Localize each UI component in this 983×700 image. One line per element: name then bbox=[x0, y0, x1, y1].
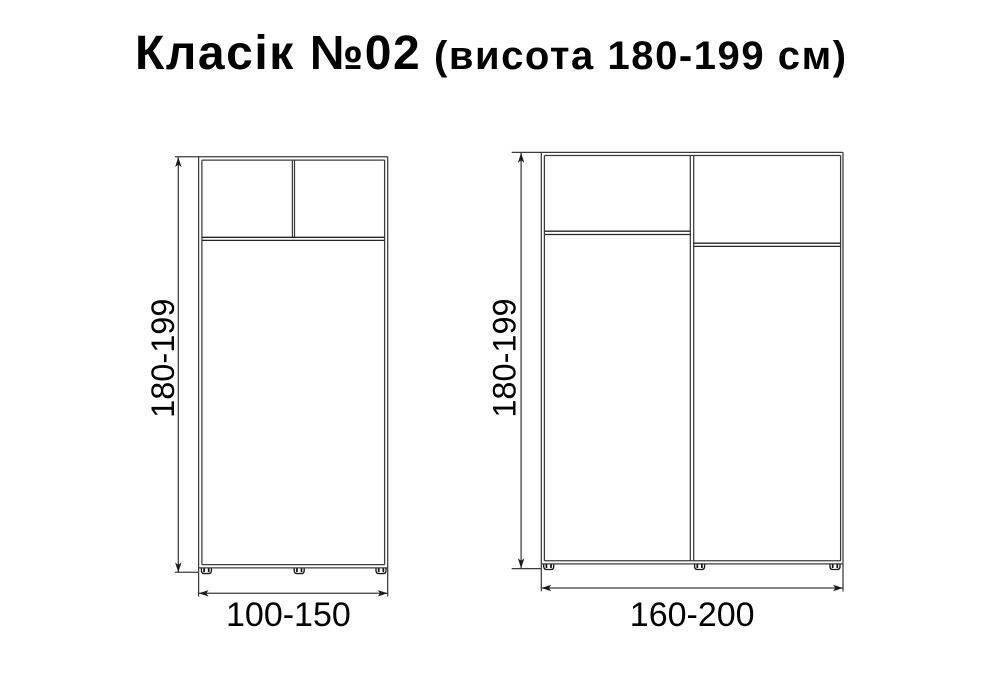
svg-text:160-200: 160-200 bbox=[630, 596, 755, 634]
svg-text:Класік №02 (висота 180-199 см): Класік №02 (висота 180-199 см) bbox=[135, 27, 848, 80]
svg-text:180-199: 180-199 bbox=[145, 299, 181, 418]
svg-text:100-150: 100-150 bbox=[226, 596, 351, 634]
svg-text:180-199: 180-199 bbox=[487, 298, 523, 417]
